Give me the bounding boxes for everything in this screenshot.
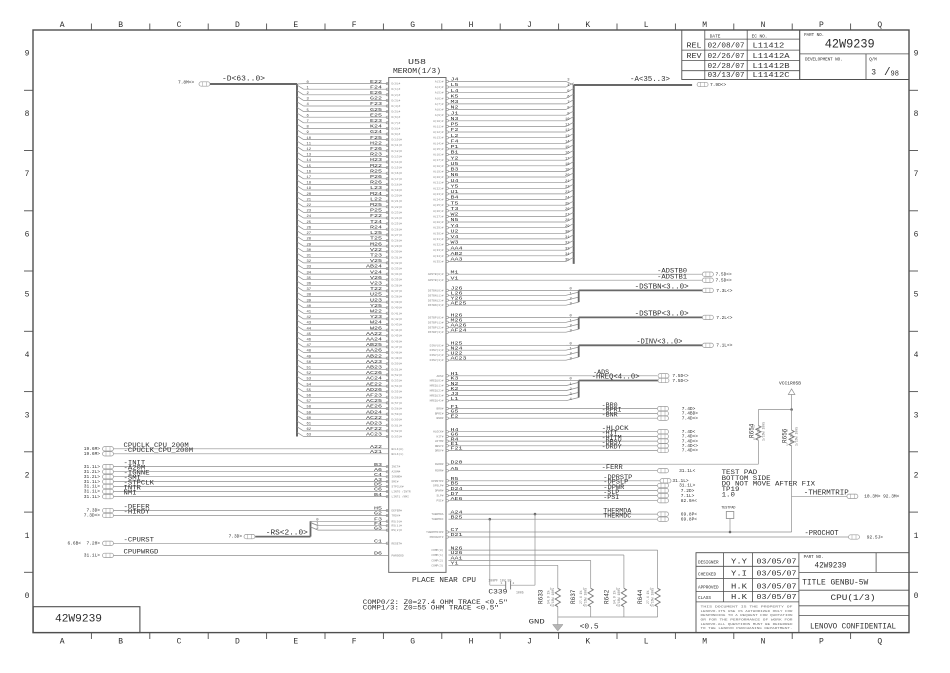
svg-text:F21: F21	[451, 446, 463, 452]
svg-text:H22: H22	[370, 140, 382, 146]
svg-text:AE6: AE6	[451, 496, 463, 502]
svg-text:DSTBP(3)#: DSTBP(3)#	[428, 330, 444, 334]
svg-text:DINV(0)#: DINV(0)#	[430, 343, 444, 347]
svg-text:A(8)#: A(8)#	[435, 108, 444, 112]
svg-text:E25: E25	[370, 112, 382, 118]
svg-text:BPRI#: BPRI#	[435, 413, 444, 416]
svg-text:H: H	[469, 638, 474, 647]
svg-text:23: 23	[307, 210, 312, 214]
svg-text:A(12)#: A(12)#	[433, 130, 444, 134]
svg-text:L5: L5	[451, 82, 459, 88]
svg-text:D(46)#: D(46)#	[392, 339, 403, 343]
svg-text:R633: R633	[537, 589, 544, 604]
svg-text:D(60)#: D(60)#	[392, 418, 403, 422]
svg-text:J1: J1	[451, 110, 459, 116]
svg-text:Y5: Y5	[451, 184, 459, 190]
svg-text:31.1L<: 31.1L<	[679, 468, 696, 474]
svg-text:P5: P5	[451, 122, 459, 128]
svg-text:2: 2	[513, 582, 515, 585]
svg-text:DPWR#: DPWR#	[435, 490, 444, 493]
svg-text:E26: E26	[370, 90, 382, 96]
svg-text:AA26: AA26	[366, 348, 382, 354]
svg-text:DEFER#: DEFER#	[392, 510, 403, 513]
svg-text:A(30)#: A(30)#	[433, 231, 444, 235]
svg-text:7: 7	[25, 170, 30, 179]
svg-text:42W9239: 42W9239	[825, 38, 875, 52]
svg-text:D(29)#: D(29)#	[392, 244, 403, 248]
svg-text:D(16)#: D(16)#	[392, 171, 403, 175]
svg-text:D(8)#: D(8)#	[392, 126, 401, 130]
svg-text:-PSI: -PSI	[603, 494, 619, 501]
svg-text:33: 33	[565, 247, 570, 251]
svg-text:A21: A21	[370, 449, 382, 455]
svg-text:56 5%: 56 5%	[757, 428, 761, 438]
svg-text:9: 9	[25, 50, 30, 59]
svg-text:E: E	[293, 638, 298, 647]
svg-text:E23: E23	[370, 118, 382, 124]
svg-text:A(6)#: A(6)#	[435, 96, 444, 100]
svg-text:03/05/07: 03/05/07	[757, 570, 797, 578]
svg-text:31: 31	[307, 255, 312, 259]
svg-text:D(28)#: D(28)#	[392, 239, 403, 243]
svg-text:C1: C1	[374, 539, 382, 545]
svg-text:A: A	[60, 638, 65, 647]
svg-text:32: 32	[565, 242, 570, 246]
svg-text:44: 44	[307, 327, 312, 331]
svg-text:7.9D<>: 7.9D<>	[710, 82, 727, 88]
svg-text:D(34)#: D(34)#	[392, 272, 403, 276]
svg-text:11: 11	[307, 142, 312, 146]
svg-text:V25: V25	[370, 258, 382, 264]
svg-text:A(7)#: A(7)#	[435, 102, 444, 106]
svg-text:35: 35	[307, 277, 312, 281]
svg-text:T5: T5	[451, 200, 459, 206]
svg-text:CPUPWRGD: CPUPWRGD	[124, 548, 159, 555]
svg-text:K5: K5	[451, 94, 459, 100]
svg-text:1: 1	[616, 588, 618, 591]
svg-text:U4: U4	[451, 178, 459, 184]
svg-text:19: 19	[307, 187, 312, 191]
svg-text:92.5J>: 92.5J>	[867, 534, 884, 540]
svg-text:GND: GND	[529, 619, 546, 626]
svg-text:H: H	[469, 21, 474, 30]
svg-text:Y4: Y4	[451, 223, 459, 229]
svg-text:REL: REL	[687, 43, 703, 51]
svg-text:58: 58	[307, 406, 312, 410]
svg-text:J4: J4	[451, 77, 459, 83]
svg-text:A(18)#: A(18)#	[433, 164, 444, 168]
svg-text:A: A	[60, 21, 65, 30]
svg-text:SMI#: SMI#	[392, 481, 399, 484]
svg-text:27.4 1%: 27.4 1%	[646, 591, 650, 604]
svg-text:A5: A5	[451, 466, 459, 472]
svg-text:-BNR: -BNR	[602, 411, 618, 418]
svg-text:A(27)#: A(27)#	[433, 214, 444, 218]
svg-text:L11412: L11412	[753, 43, 785, 51]
svg-text:36: 36	[307, 283, 312, 287]
svg-text:TITLE GENBU-5W: TITLE GENBU-5W	[802, 579, 868, 588]
svg-text:D(41)#: D(41)#	[392, 311, 403, 315]
svg-text:A(32)#: A(32)#	[433, 243, 444, 247]
svg-text:2: 2	[650, 604, 652, 607]
svg-text:69.8P<: 69.8P<	[681, 511, 698, 517]
svg-text:L22: L22	[370, 196, 382, 202]
svg-text:L4: L4	[451, 88, 459, 94]
svg-text:1: 1	[753, 437, 755, 441]
svg-text:31.1L>: 31.1L>	[84, 494, 101, 500]
svg-text:F22: F22	[370, 213, 382, 219]
svg-text:N2: N2	[451, 105, 459, 111]
svg-text:03/05/07: 03/05/07	[757, 594, 797, 602]
svg-text:H23: H23	[370, 157, 382, 163]
svg-text:3: 3	[25, 411, 30, 420]
svg-text:DATE: DATE	[710, 35, 721, 40]
svg-text:-D<63..0>: -D<63..0>	[222, 76, 265, 84]
svg-text:BCLK(1): BCLK(1)	[392, 452, 404, 456]
svg-text:2: 2	[550, 604, 552, 607]
svg-text:A(4)#: A(4)#	[435, 85, 444, 89]
svg-text:LENOVO CONFIDENTIAL: LENOVO CONFIDENTIAL	[810, 623, 896, 632]
svg-text:T3: T3	[451, 206, 459, 212]
svg-text:V1: V1	[451, 275, 459, 281]
svg-text:P: P	[819, 638, 824, 647]
svg-text:D(39)#: D(39)#	[392, 300, 403, 304]
svg-text:NMI: NMI	[124, 490, 137, 497]
svg-text:Q/M: Q/M	[869, 57, 877, 62]
svg-text:E2: E2	[451, 413, 459, 419]
svg-text:B3: B3	[374, 462, 382, 468]
svg-text:D(63)#: D(63)#	[392, 435, 403, 439]
svg-text:AA24: AA24	[366, 337, 382, 343]
svg-text:D(17)#: D(17)#	[392, 177, 403, 181]
svg-text:7.2L<>: 7.2L<>	[716, 315, 733, 321]
svg-text:U23: U23	[370, 297, 382, 303]
svg-text:52: 52	[307, 372, 312, 376]
svg-text:W22: W22	[370, 309, 382, 315]
svg-text:A(28)#: A(28)#	[433, 220, 444, 224]
svg-text:D(54)#: D(54)#	[392, 384, 403, 388]
svg-text:7.5D<>: 7.5D<>	[716, 271, 733, 277]
svg-text:25: 25	[565, 202, 570, 206]
svg-text:25: 25	[307, 221, 312, 225]
svg-text:MEROM(1/3): MEROM(1/3)	[393, 68, 441, 76]
svg-text:A(29)#: A(29)#	[433, 226, 444, 230]
svg-text:15: 15	[565, 146, 570, 150]
svg-text:Y.Y: Y.Y	[731, 558, 748, 566]
svg-text:E: E	[293, 21, 298, 30]
svg-text:50: 50	[307, 361, 312, 365]
svg-text:D(12)#: D(12)#	[392, 149, 403, 153]
svg-text:W3: W3	[451, 240, 459, 246]
svg-text:17: 17	[307, 176, 312, 180]
svg-text:R24: R24	[370, 225, 382, 231]
svg-text:-PROCHOT: -PROCHOT	[805, 530, 839, 538]
svg-text:13: 13	[307, 154, 312, 158]
svg-text:VCC1R05B: VCC1R05B	[779, 381, 801, 387]
svg-text:INIT#: INIT#	[392, 466, 401, 469]
svg-text:54.9 1%: 54.9 1%	[546, 591, 550, 604]
svg-text:COMP(0): COMP(0)	[431, 548, 443, 552]
svg-text:AB23: AB23	[366, 365, 382, 371]
svg-text:DPRSTP#: DPRSTP#	[431, 480, 443, 483]
svg-text:B4: B4	[451, 195, 459, 201]
svg-text:6: 6	[25, 231, 30, 240]
svg-text:2: 2	[25, 472, 30, 481]
svg-text:P: P	[819, 21, 824, 30]
svg-text:AA23: AA23	[366, 359, 382, 365]
svg-text:49: 49	[307, 355, 312, 359]
svg-text:7.1L<>: 7.1L<>	[716, 343, 733, 349]
svg-text:1: 1	[786, 443, 788, 447]
svg-text:COMP(3): COMP(3)	[431, 563, 443, 567]
svg-text:EC NO.: EC NO.	[752, 35, 768, 40]
svg-text:19.6M>: 19.6M>	[84, 451, 101, 457]
svg-text:16: 16	[565, 152, 570, 156]
svg-text:11: 11	[565, 124, 570, 128]
svg-text:03/05/07: 03/05/07	[757, 558, 797, 566]
svg-text:Y.I: Y.I	[731, 570, 747, 578]
svg-text:DSTBP(0)#: DSTBP(0)#	[428, 315, 444, 319]
svg-text:-DRDY: -DRDY	[602, 444, 622, 451]
svg-text:03/05/07: 03/05/07	[757, 584, 797, 592]
svg-text:A(24)#: A(24)#	[433, 198, 444, 202]
svg-text:AA4: AA4	[451, 245, 463, 251]
svg-text:AE25: AE25	[451, 300, 467, 306]
svg-text:1005: 1005	[516, 590, 524, 594]
svg-text:D(35)#: D(35)#	[392, 278, 403, 282]
svg-text:12: 12	[565, 129, 570, 133]
svg-text:C339: C339	[488, 588, 507, 595]
svg-text:PLACE NEAR CPU: PLACE NEAR CPU	[412, 577, 476, 585]
svg-text:54.9 1%: 54.9 1%	[612, 591, 616, 604]
svg-text:31: 31	[565, 236, 570, 240]
svg-text:-HIRDY: -HIRDY	[124, 509, 151, 516]
svg-text:D(23)#: D(23)#	[392, 210, 403, 214]
svg-text:55: 55	[307, 389, 312, 393]
svg-text:42: 42	[307, 316, 312, 320]
svg-text:M1: M1	[451, 269, 459, 275]
svg-text:10: 10	[565, 118, 570, 122]
svg-text:L11412B: L11412B	[753, 63, 791, 71]
svg-text:G: G	[410, 21, 415, 30]
svg-text:2: 2	[753, 425, 755, 429]
svg-text:D(31)#: D(31)#	[392, 255, 403, 259]
svg-text:A20M#: A20M#	[392, 471, 401, 474]
svg-text:COMP(1): COMP(1)	[431, 553, 443, 557]
svg-text:M: M	[702, 21, 707, 30]
svg-text:B25: B25	[451, 514, 463, 520]
svg-text:20: 20	[307, 193, 312, 197]
svg-text:M3: M3	[451, 99, 459, 105]
svg-text:3: 3	[871, 69, 876, 78]
svg-text:39: 39	[307, 299, 312, 303]
svg-text:D(52)#: D(52)#	[392, 373, 403, 377]
svg-text:26: 26	[307, 227, 312, 231]
svg-text:A(35)#: A(35)#	[433, 259, 444, 263]
svg-text:TO THE LENOVO PURCHASING DEPAR: TO THE LENOVO PURCHASING DEPARTMENT.	[701, 626, 793, 630]
svg-text:60: 60	[307, 417, 312, 421]
svg-text:C6: C6	[374, 487, 382, 493]
svg-text:42W9239: 42W9239	[55, 614, 102, 626]
svg-text:DSTBN(1)#: DSTBN(1)#	[428, 293, 444, 297]
svg-text:A(25)#: A(25)#	[433, 203, 444, 207]
svg-text:02/26/07: 02/26/07	[708, 53, 745, 61]
svg-text:-A<35..3>: -A<35..3>	[630, 76, 670, 84]
svg-text:D(38)#: D(38)#	[392, 295, 403, 299]
svg-text:D21: D21	[451, 532, 463, 538]
svg-text:TESTPAD: TESTPAD	[721, 506, 735, 510]
svg-text:AE22: AE22	[366, 381, 382, 387]
svg-text:F4: F4	[451, 139, 459, 145]
svg-text:A(11)#: A(11)#	[433, 124, 444, 128]
svg-text:D(13)#: D(13)#	[392, 154, 403, 158]
svg-text:A(14)#: A(14)#	[433, 141, 444, 145]
svg-text:-CPURST: -CPURST	[124, 536, 155, 543]
svg-text:U5: U5	[451, 161, 459, 167]
svg-text:N5: N5	[451, 217, 459, 223]
svg-text:16: 16	[307, 170, 312, 174]
svg-text:35: 35	[565, 259, 570, 263]
svg-text:24: 24	[565, 197, 570, 201]
svg-text:7.4D<>: 7.4D<>	[682, 448, 699, 454]
svg-text:7.5D<>: 7.5D<>	[672, 378, 689, 384]
svg-text:AB25: AB25	[366, 342, 382, 348]
svg-text:29: 29	[565, 225, 570, 229]
svg-text:1/16W 1005: 1/16W 1005	[795, 427, 799, 446]
svg-text:L23: L23	[370, 185, 382, 191]
svg-text:THERMDC: THERMDC	[603, 512, 631, 519]
svg-text:J: J	[527, 638, 532, 647]
svg-text:69.8P<: 69.8P<	[681, 516, 698, 522]
svg-text:F: F	[352, 638, 357, 647]
svg-text:D(10)#: D(10)#	[392, 138, 403, 142]
svg-text:AF23: AF23	[366, 393, 382, 399]
svg-text:D(25)#: D(25)#	[392, 222, 403, 226]
svg-text:28: 28	[565, 219, 570, 223]
svg-text:P26: P26	[370, 174, 382, 180]
svg-text:V23: V23	[370, 281, 382, 287]
svg-text:4: 4	[914, 351, 919, 360]
svg-text:DINV(1)#: DINV(1)#	[430, 348, 444, 352]
svg-text:D(48)#: D(48)#	[392, 351, 403, 355]
svg-text:ADSTB(1)#: ADSTB(1)#	[428, 278, 444, 282]
svg-text:M26: M26	[370, 241, 382, 247]
svg-text:R26: R26	[370, 180, 382, 186]
svg-text:PSI#: PSI#	[437, 500, 444, 503]
svg-text:D(40)#: D(40)#	[392, 306, 403, 310]
svg-text:D(21)#: D(21)#	[392, 199, 403, 203]
svg-text:61: 61	[307, 423, 312, 427]
svg-text:D(32)#: D(32)#	[392, 261, 403, 265]
svg-text:R25: R25	[370, 168, 382, 174]
svg-text:D(30)#: D(30)#	[392, 250, 403, 254]
svg-text:7.5D<>: 7.5D<>	[716, 277, 733, 283]
svg-text:A(23)#: A(23)#	[433, 192, 444, 196]
svg-text:6: 6	[914, 231, 919, 240]
svg-text:D(18)#: D(18)#	[392, 182, 403, 186]
svg-text:P1: P1	[451, 144, 459, 150]
svg-text:42W9239: 42W9239	[815, 561, 847, 571]
svg-text:17: 17	[565, 157, 570, 161]
svg-text:U25: U25	[370, 292, 382, 298]
svg-text:15: 15	[307, 165, 312, 169]
svg-text:A(22)#: A(22)#	[433, 186, 444, 190]
svg-text:AD24: AD24	[366, 409, 382, 415]
svg-text:14: 14	[307, 159, 312, 163]
svg-text:AC23: AC23	[366, 432, 382, 438]
svg-text:CPU(1/3): CPU(1/3)	[831, 594, 876, 603]
svg-text:34: 34	[565, 253, 570, 257]
svg-text:1: 1	[650, 588, 652, 591]
svg-text:2: 2	[616, 604, 618, 607]
svg-text:F25: F25	[370, 135, 382, 141]
svg-text:G22: G22	[370, 96, 382, 102]
svg-text:D6: D6	[374, 551, 382, 557]
svg-text:U58: U58	[408, 59, 426, 67]
svg-text:DINV(2)#: DINV(2)#	[430, 353, 444, 357]
svg-text:DINV(3)#: DINV(3)#	[430, 358, 444, 362]
svg-text:BCLK(0): BCLK(0)	[392, 447, 404, 451]
svg-text:7.3L<>: 7.3L<>	[716, 288, 733, 294]
svg-text:W24: W24	[370, 320, 382, 326]
svg-text:D(44)#: D(44)#	[392, 328, 403, 332]
svg-text:D(36)#: D(36)#	[392, 283, 403, 287]
svg-text:RESET#: RESET#	[392, 542, 403, 545]
svg-text:V24: V24	[370, 269, 382, 275]
svg-text:7.20>: 7.20>	[86, 541, 100, 547]
svg-text:21: 21	[307, 198, 312, 202]
svg-text:HIT#: HIT#	[437, 435, 444, 438]
svg-text:D(61)#: D(61)#	[392, 423, 403, 427]
svg-text:CHECKED: CHECKED	[698, 572, 716, 577]
svg-text:D(19)#: D(19)#	[392, 188, 403, 192]
svg-text:HREQ(4)#: HREQ(4)#	[430, 399, 444, 403]
svg-text:C: C	[177, 21, 182, 30]
svg-text:98: 98	[891, 71, 899, 79]
svg-text:AF24: AF24	[451, 327, 467, 333]
svg-text:1: 1	[25, 532, 30, 541]
svg-text:G25: G25	[370, 107, 382, 113]
svg-text:U2: U2	[451, 229, 459, 235]
svg-text:8: 8	[25, 110, 30, 119]
svg-text:L: L	[644, 21, 649, 30]
svg-text:D(37)#: D(37)#	[392, 289, 403, 293]
svg-text:APPROVED: APPROVED	[698, 586, 719, 591]
svg-text:AA22: AA22	[366, 331, 382, 337]
svg-text:D(7)#: D(7)#	[392, 121, 401, 125]
svg-text:-RS<2..0>: -RS<2..0>	[266, 529, 308, 537]
svg-text:27.4 1%: 27.4 1%	[579, 591, 583, 604]
svg-text:HREQ(0)#: HREQ(0)#	[430, 379, 444, 383]
svg-text:REV: REV	[687, 53, 703, 61]
svg-text:D(24)#: D(24)#	[392, 216, 403, 220]
svg-text:7: 7	[307, 120, 309, 124]
svg-text:N: N	[761, 21, 766, 30]
svg-text:W26: W26	[370, 325, 382, 331]
svg-text:10: 10	[307, 137, 312, 141]
svg-text:R23: R23	[370, 152, 382, 158]
svg-text:THERMDC: THERMDC	[431, 518, 443, 521]
svg-text:F2: F2	[451, 127, 459, 133]
svg-text:D(51)#: D(51)#	[392, 367, 403, 371]
svg-text:B: B	[118, 638, 123, 647]
svg-text:1.0: 1.0	[722, 491, 735, 498]
svg-text:Y25: Y25	[370, 303, 382, 309]
svg-text:F26: F26	[370, 146, 382, 152]
svg-text:27: 27	[565, 214, 570, 218]
svg-text:D(57)#: D(57)#	[392, 401, 403, 405]
svg-text:-DSTBN<3..0>: -DSTBN<3..0>	[635, 283, 689, 291]
